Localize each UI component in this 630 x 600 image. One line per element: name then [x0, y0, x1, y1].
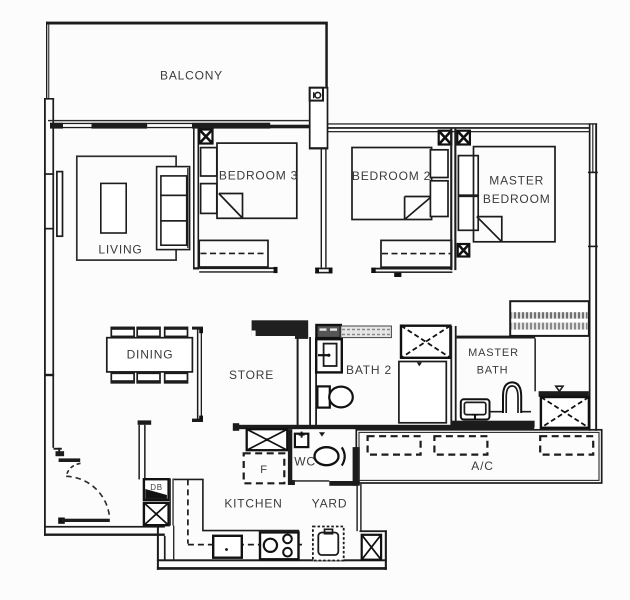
svg-text:BEDROOM 2: BEDROOM 2: [352, 169, 431, 183]
svg-text:BATH 2: BATH 2: [346, 363, 392, 377]
svg-text:YARD: YARD: [312, 497, 348, 511]
svg-text:MASTER: MASTER: [489, 174, 544, 188]
svg-text:BEDROOM 3: BEDROOM 3: [219, 169, 298, 183]
svg-text:BALCONY: BALCONY: [160, 69, 223, 83]
svg-text:BATH: BATH: [477, 364, 509, 376]
svg-text:DB: DB: [150, 483, 163, 492]
svg-text:LIVING: LIVING: [98, 243, 142, 257]
svg-text:STORE: STORE: [229, 368, 274, 382]
svg-text:WC: WC: [294, 454, 316, 468]
svg-text:MASTER: MASTER: [468, 347, 519, 359]
svg-text:A/C: A/C: [471, 459, 493, 473]
svg-text:KITCHEN: KITCHEN: [224, 497, 282, 511]
svg-text:BEDROOM: BEDROOM: [483, 192, 551, 206]
svg-text:DINING: DINING: [127, 347, 174, 361]
svg-text:F: F: [260, 464, 268, 476]
